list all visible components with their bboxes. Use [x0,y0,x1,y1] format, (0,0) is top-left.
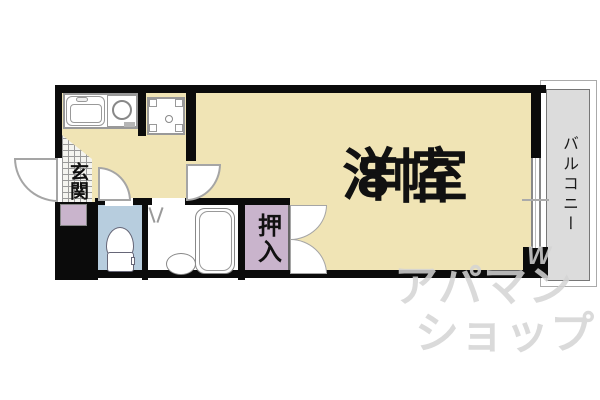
main-room-label: 洋室 8帖 [295,100,515,252]
toilet-flush-handle [131,257,135,265]
drain-icon [165,115,173,123]
floorplan-canvas: 玄関 押入 バルコニー 洋室 8帖 W アパマン ショップ [0,0,600,400]
wall [142,198,148,280]
wall [138,85,146,136]
faucet-icon [76,97,88,102]
pan-corner [175,124,183,132]
wall [238,198,245,280]
wall [55,85,546,93]
balcony-label: バルコニー [546,100,590,270]
wall [531,85,541,160]
window-latch-mark [522,199,549,201]
toilet-tank-icon [107,252,134,272]
balcony-window-rail [535,158,536,248]
balcony-window [531,158,541,248]
stove-burner-icon [112,100,132,120]
pan-corner [149,124,157,132]
kitchen-sink-basin [70,104,102,123]
closet-label: 押入 [249,207,285,271]
shoe-cabinet-icon [60,204,87,226]
bath-door-opening [152,198,185,206]
pan-corner [175,99,183,107]
wall [186,85,196,161]
watermark-text: ショップ [415,297,595,361]
entrance-door-swing-icon [14,158,58,202]
main-room-size: 8帖 [357,149,453,207]
washbasin-icon [166,253,196,275]
wall [55,85,62,158]
pan-corner [149,99,157,107]
bathtub-inner [199,211,232,271]
stove-control [124,122,135,127]
entrance-label: 玄関 [64,155,91,207]
